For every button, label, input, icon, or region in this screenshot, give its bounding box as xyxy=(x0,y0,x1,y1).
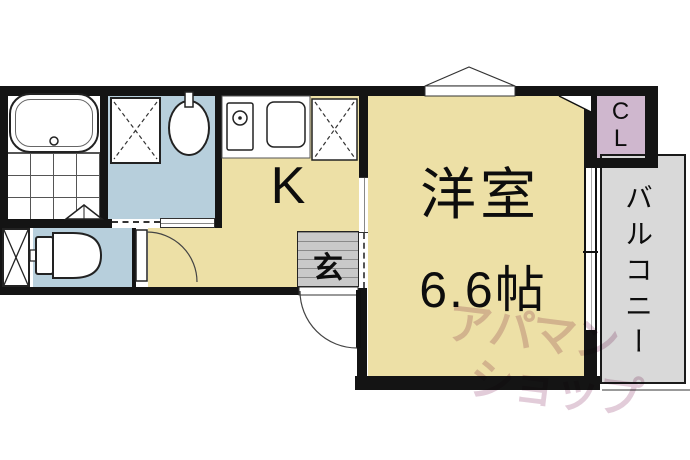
wall xyxy=(132,228,136,287)
wall xyxy=(359,96,368,177)
washroom-opening-line xyxy=(112,221,160,223)
wall xyxy=(645,86,658,168)
bathroom-tile-floor xyxy=(8,152,103,219)
toilet-room-area xyxy=(33,228,132,287)
closet-letter-c: C xyxy=(612,98,629,125)
closet-label: C L xyxy=(596,98,645,152)
entrance-step-line xyxy=(359,233,367,288)
wall xyxy=(100,96,108,220)
wall xyxy=(515,86,658,96)
kitchen-label: K xyxy=(260,156,316,216)
closet-letter-l: L xyxy=(614,125,627,152)
bay-window-icon xyxy=(425,67,515,96)
bathtub-icon xyxy=(10,94,98,152)
wall xyxy=(0,219,112,228)
wall xyxy=(0,86,8,295)
entrance-label: 玄 xyxy=(310,243,346,287)
washroom-area xyxy=(108,96,215,219)
wall xyxy=(0,86,425,96)
wall xyxy=(215,96,222,228)
balcony-label: バルコニー xyxy=(622,168,652,378)
entrance-door-icon xyxy=(299,287,361,348)
wall xyxy=(0,287,299,295)
hallway-area xyxy=(148,228,222,287)
floor-plan: K 洋室 6.6帖 玄 C L バルコニー アパマン ショップ xyxy=(0,0,690,460)
sliding-door-washroom xyxy=(160,218,215,228)
sliding-door-kitchen-living xyxy=(359,177,368,233)
living-room-label: 洋室 xyxy=(390,150,570,231)
wall xyxy=(357,288,367,388)
